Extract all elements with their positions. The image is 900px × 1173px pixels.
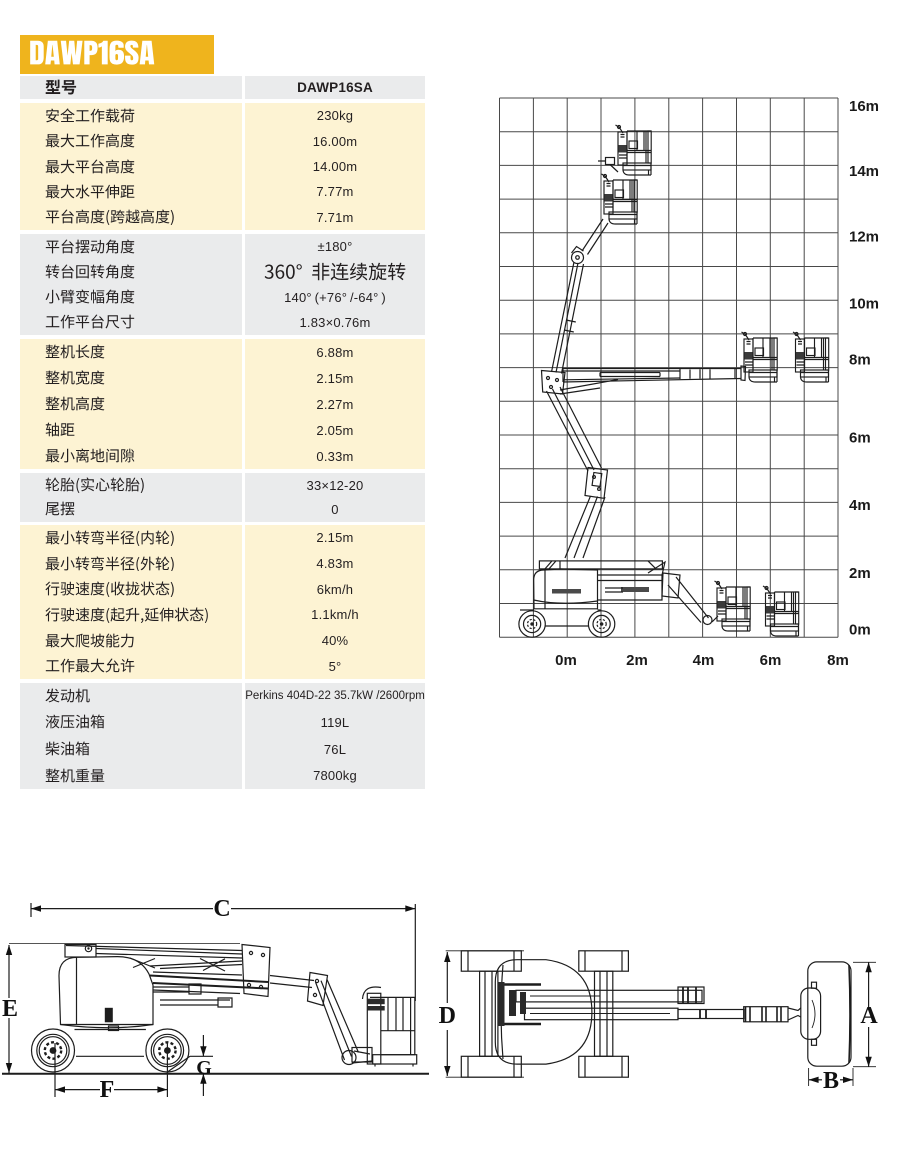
svg-text:10m: 10m — [849, 295, 879, 312]
svg-text:8m: 8m — [849, 351, 871, 368]
svg-text:2m: 2m — [626, 652, 648, 669]
svg-text:4m: 4m — [693, 652, 715, 669]
svg-text:14m: 14m — [849, 163, 879, 180]
svg-text:G: G — [196, 1057, 212, 1079]
svg-text:B: B — [823, 1068, 839, 1094]
svg-text:12m: 12m — [849, 228, 879, 245]
svg-text:6m: 6m — [760, 652, 782, 669]
svg-text:2m: 2m — [849, 565, 871, 582]
svg-text:D: D — [439, 1003, 456, 1029]
svg-text:0m: 0m — [849, 621, 871, 638]
svg-text:6m: 6m — [849, 429, 871, 446]
svg-text:8m: 8m — [827, 652, 849, 669]
svg-text:C: C — [213, 896, 230, 922]
svg-text:E: E — [2, 996, 18, 1022]
svg-text:F: F — [100, 1077, 115, 1103]
svg-text:16m: 16m — [849, 98, 879, 115]
svg-text:4m: 4m — [849, 497, 871, 514]
svg-text:A: A — [860, 1003, 878, 1029]
svg-text:0m: 0m — [555, 652, 577, 669]
